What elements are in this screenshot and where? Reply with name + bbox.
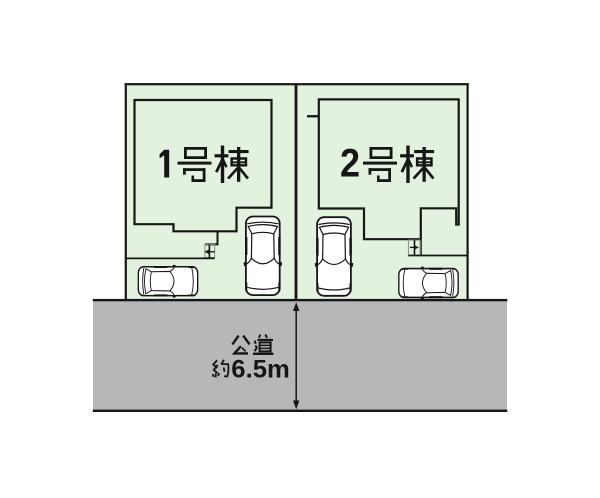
svg-text:6.5m: 6.5m [231,356,290,384]
svg-text:2: 2 [340,142,360,186]
